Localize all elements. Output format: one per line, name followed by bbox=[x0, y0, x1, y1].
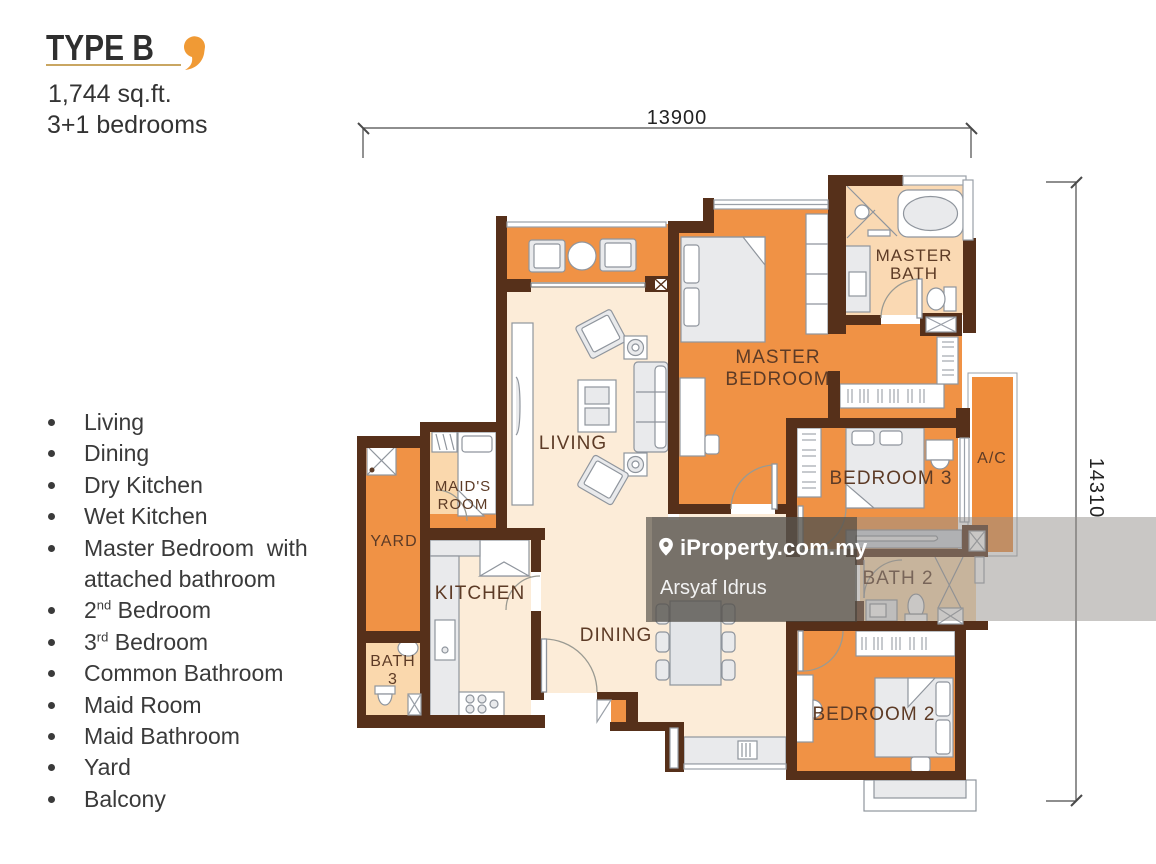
svg-text:MASTER: MASTER bbox=[735, 347, 820, 368]
svg-text:13900: 13900 bbox=[647, 107, 708, 129]
svg-text:BEDROOM 2: BEDROOM 2 bbox=[812, 704, 935, 725]
svg-text:MAID'S: MAID'S bbox=[435, 478, 491, 495]
svg-text:YARD: YARD bbox=[370, 533, 417, 550]
svg-text:KITCHEN: KITCHEN bbox=[435, 583, 525, 604]
svg-text:DINING: DINING bbox=[580, 625, 653, 646]
svg-text:BEDROOM 3: BEDROOM 3 bbox=[829, 468, 952, 489]
svg-text:BEDROOM: BEDROOM bbox=[725, 369, 830, 390]
svg-text:ROOM: ROOM bbox=[438, 496, 489, 513]
svg-text:LIVING: LIVING bbox=[539, 433, 607, 454]
svg-text:MASTER: MASTER bbox=[876, 246, 953, 265]
svg-text:14310: 14310 bbox=[1085, 458, 1107, 519]
svg-text:BATH: BATH bbox=[890, 264, 938, 283]
svg-text:BATH: BATH bbox=[370, 653, 415, 670]
svg-text:A/C: A/C bbox=[977, 450, 1007, 467]
svg-text:3: 3 bbox=[388, 671, 398, 688]
